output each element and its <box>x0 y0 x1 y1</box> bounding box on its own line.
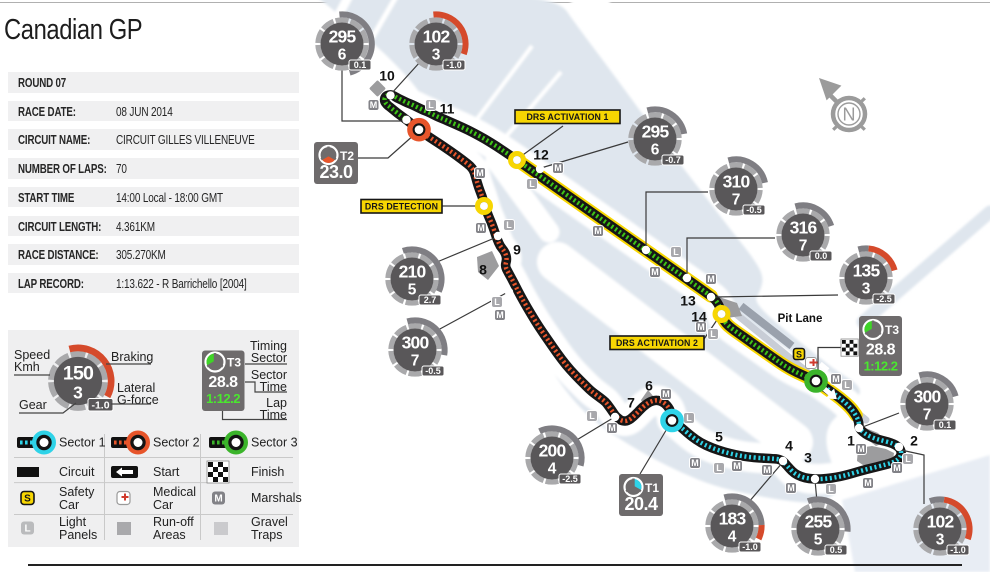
svg-text:Kmh: Kmh <box>14 360 40 374</box>
svg-text:M: M <box>477 223 485 233</box>
svg-text:5: 5 <box>814 532 823 549</box>
svg-text:0.5: 0.5 <box>830 545 843 555</box>
svg-text:M: M <box>554 163 562 173</box>
svg-text:M: M <box>608 423 616 433</box>
svg-text:M: M <box>707 274 715 284</box>
svg-text:2.7: 2.7 <box>424 295 437 305</box>
svg-text:Traps: Traps <box>251 528 283 542</box>
svg-text:M: M <box>691 458 699 468</box>
svg-text:150: 150 <box>63 362 94 384</box>
svg-text:4: 4 <box>785 438 793 454</box>
svg-text:0.0: 0.0 <box>815 251 828 261</box>
svg-text:9: 9 <box>513 242 521 258</box>
svg-text:M: M <box>594 226 602 236</box>
svg-text:-2.5: -2.5 <box>562 474 578 484</box>
svg-text:Finish: Finish <box>251 465 284 479</box>
svg-text:295: 295 <box>329 27 357 47</box>
svg-text:S: S <box>24 494 31 505</box>
svg-text:S: S <box>796 350 802 360</box>
svg-text:M: M <box>787 483 795 493</box>
svg-text:210: 210 <box>399 262 427 282</box>
svg-text:Marshals: Marshals <box>251 491 302 505</box>
svg-text:L: L <box>673 247 679 257</box>
svg-text:-1.0: -1.0 <box>446 60 462 70</box>
svg-text:0.1: 0.1 <box>939 420 952 430</box>
svg-text:135: 135 <box>853 261 881 281</box>
svg-text:4: 4 <box>548 461 557 478</box>
svg-text:Braking: Braking <box>111 350 153 364</box>
svg-text:L: L <box>494 297 500 307</box>
svg-text:5: 5 <box>408 282 417 299</box>
svg-text:300: 300 <box>402 333 430 353</box>
svg-text:-1.0: -1.0 <box>91 400 109 412</box>
svg-text:L: L <box>686 413 692 423</box>
svg-text:Run-off: Run-off <box>153 515 194 529</box>
svg-text:L: L <box>506 220 512 230</box>
svg-text:T3: T3 <box>885 323 899 337</box>
svg-text:316: 316 <box>790 218 818 238</box>
svg-text:1:12.2: 1:12.2 <box>864 359 898 374</box>
svg-text:4: 4 <box>728 529 737 546</box>
svg-text:102: 102 <box>927 512 955 532</box>
svg-text:295: 295 <box>642 122 670 142</box>
svg-text:M: M <box>893 463 901 473</box>
svg-text:L: L <box>828 484 834 494</box>
svg-text:L: L <box>844 380 850 390</box>
svg-text:7: 7 <box>799 238 808 255</box>
svg-text:Pit Lane: Pit Lane <box>778 313 823 325</box>
svg-text:Sector 2: Sector 2 <box>153 436 200 450</box>
svg-text:28.8: 28.8 <box>866 342 896 359</box>
svg-text:Sector 3: Sector 3 <box>251 436 298 450</box>
svg-text:23.0: 23.0 <box>319 162 353 182</box>
svg-text:-2.5: -2.5 <box>876 294 892 304</box>
svg-text:Sector: Sector <box>251 351 287 365</box>
svg-text:M: M <box>476 168 484 178</box>
svg-text:M: M <box>832 374 840 384</box>
svg-text:20.4: 20.4 <box>624 494 658 514</box>
svg-text:T1: T1 <box>645 481 659 495</box>
svg-text:11: 11 <box>440 101 455 117</box>
svg-text:M: M <box>662 389 670 399</box>
svg-text:6: 6 <box>645 378 653 394</box>
svg-text:13: 13 <box>680 293 696 309</box>
svg-text:3: 3 <box>862 281 871 298</box>
svg-text:28.8: 28.8 <box>208 374 238 391</box>
svg-text:3: 3 <box>804 450 812 466</box>
svg-text:T2: T2 <box>340 149 354 163</box>
svg-text:7: 7 <box>411 353 420 370</box>
svg-text:3: 3 <box>432 47 441 64</box>
svg-text:1:12.2: 1:12.2 <box>206 391 240 406</box>
svg-text:M: M <box>370 100 378 110</box>
svg-text:-0.7: -0.7 <box>665 155 681 165</box>
svg-text:T3: T3 <box>227 356 241 370</box>
svg-text:8: 8 <box>479 262 487 278</box>
svg-text:6: 6 <box>651 142 660 159</box>
svg-text:-0.5: -0.5 <box>425 366 441 376</box>
svg-text:DRS ACTIVATION 2: DRS ACTIVATION 2 <box>616 338 698 348</box>
svg-text:6: 6 <box>338 47 347 64</box>
svg-text:M: M <box>651 267 659 277</box>
svg-text:Safety: Safety <box>59 485 95 499</box>
svg-text:L: L <box>710 329 716 339</box>
svg-text:300: 300 <box>914 387 942 407</box>
svg-text:10: 10 <box>379 68 395 84</box>
svg-text:7: 7 <box>732 192 741 209</box>
svg-text:DRS DETECTION: DRS DETECTION <box>365 202 438 212</box>
svg-text:12: 12 <box>533 147 549 163</box>
svg-text:Start: Start <box>153 465 180 479</box>
svg-text:DRS ACTIVATION 1: DRS ACTIVATION 1 <box>526 112 608 122</box>
svg-text:3: 3 <box>936 532 945 549</box>
svg-text:L: L <box>589 411 595 421</box>
svg-text:3: 3 <box>73 382 83 402</box>
svg-text:Car: Car <box>153 498 173 512</box>
svg-text:Gravel: Gravel <box>251 515 288 529</box>
svg-text:M: M <box>864 478 872 488</box>
svg-text:Sector 1: Sector 1 <box>59 436 106 450</box>
svg-text:M: M <box>496 310 504 320</box>
svg-text:200: 200 <box>539 441 567 461</box>
svg-text:L: L <box>716 463 722 473</box>
svg-text:M: M <box>763 465 771 475</box>
svg-text:2: 2 <box>910 433 918 449</box>
svg-text:-1.0: -1.0 <box>950 545 966 555</box>
svg-text:M: M <box>733 461 741 471</box>
svg-text:Panels: Panels <box>59 528 97 542</box>
svg-text:Circuit: Circuit <box>59 465 95 479</box>
svg-text:Areas: Areas <box>153 528 186 542</box>
svg-text:7: 7 <box>923 407 932 424</box>
svg-text:N: N <box>843 105 856 125</box>
svg-text:M: M <box>857 444 865 454</box>
svg-text:G-force: G-force <box>117 393 159 407</box>
svg-text:L: L <box>428 100 434 110</box>
svg-text:183: 183 <box>719 509 747 529</box>
svg-text:5: 5 <box>715 429 723 445</box>
svg-text:102: 102 <box>423 27 451 47</box>
svg-text:Car: Car <box>59 498 79 512</box>
svg-text:Medical: Medical <box>153 485 196 499</box>
svg-text:310: 310 <box>723 172 751 192</box>
svg-text:Gear: Gear <box>19 398 47 412</box>
svg-text:Light: Light <box>59 515 87 529</box>
svg-text:L: L <box>905 454 911 464</box>
svg-text:14: 14 <box>691 309 707 325</box>
svg-text:M: M <box>214 494 222 505</box>
svg-text:1: 1 <box>847 433 855 449</box>
svg-text:255: 255 <box>805 512 833 532</box>
svg-text:-1.0: -1.0 <box>742 542 758 552</box>
svg-text:0.1: 0.1 <box>354 60 367 70</box>
svg-text:L: L <box>24 524 30 535</box>
svg-text:L: L <box>529 179 535 189</box>
svg-text:-0.5: -0.5 <box>746 205 762 215</box>
svg-text:7: 7 <box>627 395 635 411</box>
